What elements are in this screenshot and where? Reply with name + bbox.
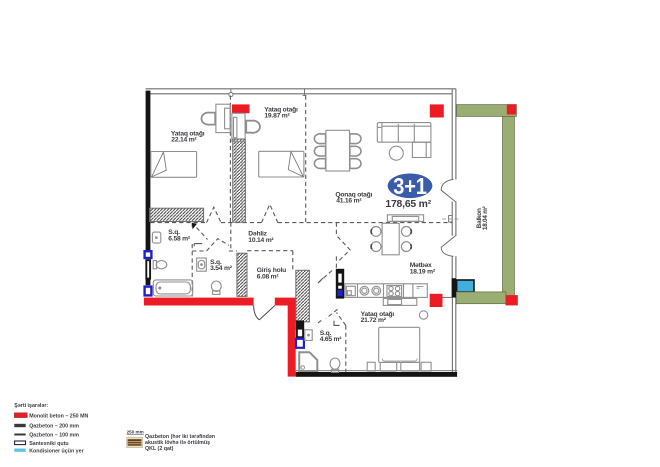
svg-text:18.04 m²: 18.04 m² [482,206,489,230]
svg-text:22.14 m²: 22.14 m² [171,137,197,144]
svg-text:19.87 m²: 19.87 m² [264,113,290,120]
svg-text:QKL (2 qat): QKL (2 qat) [145,446,174,452]
svg-text:3.54 m²: 3.54 m² [210,265,233,272]
svg-text:41.16 m²: 41.16 m² [336,198,362,205]
svg-text:6.58 m²: 6.58 m² [168,235,191,242]
svg-text:6.08 m²: 6.08 m² [257,273,280,280]
svg-text:250 mm: 250 mm [127,430,144,435]
svg-text:Qazbeton – 100 mm: Qazbeton – 100 mm [29,432,79,438]
svg-text:10.14 m²: 10.14 m² [248,237,274,244]
svg-text:Qazbeton – 200 mm: Qazbeton – 200 mm [29,423,79,429]
svg-text:4.65 m²: 4.65 m² [320,336,343,343]
svg-text:3+1: 3+1 [393,173,427,199]
svg-text:Şərti işarələr:: Şərti işarələr: [14,403,48,409]
svg-text:Santexniki qutu: Santexniki qutu [29,441,68,447]
svg-text:Monolit beton – 250 MN: Monolit beton – 250 MN [29,413,88,419]
svg-text:21.72 m²: 21.72 m² [361,317,387,324]
svg-text:178,65 m²: 178,65 m² [385,199,431,210]
svg-text:18.19 m²: 18.19 m² [410,268,436,275]
svg-text:Kondisioner üçün yer: Kondisioner üçün yer [29,448,83,454]
